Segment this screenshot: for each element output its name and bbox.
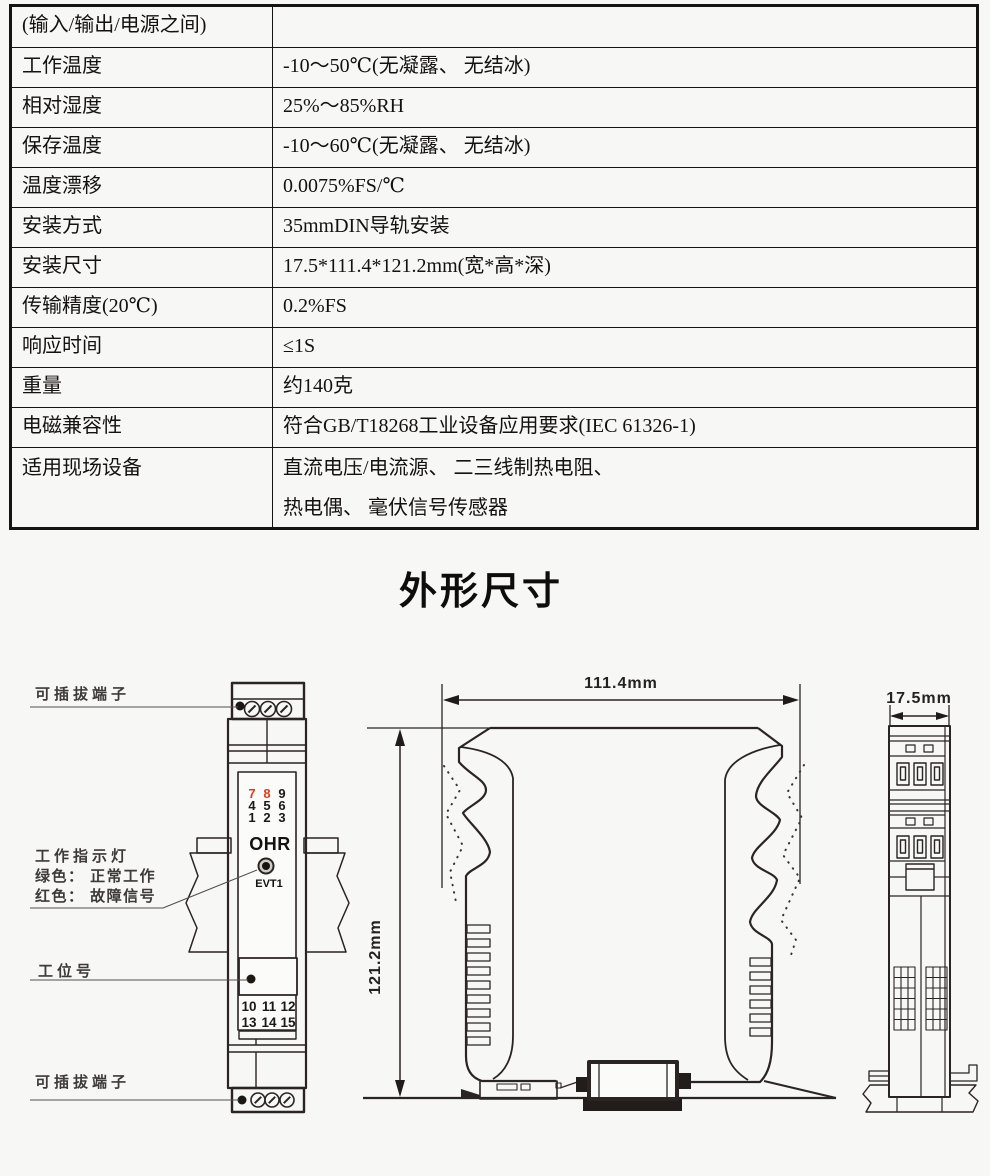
vent-slots-right — [750, 958, 771, 1036]
profile-left-edge — [459, 728, 556, 1081]
spec-label-cell: 相对湿度 — [12, 88, 273, 127]
front-view: 7 8 9 4 5 6 1 2 3 OHR EVT1 — [30, 683, 349, 1112]
vent-grid-left — [894, 967, 915, 1030]
bottom-terminal-block — [232, 1088, 304, 1112]
end-view: 17.5mm — [863, 690, 978, 1112]
spec-value-cell: 直流电压/电流源、 二三线制热电阻、 热电偶、 毫伏信号传感器 — [273, 448, 976, 527]
table-row: 重量 约140克 — [12, 367, 976, 407]
dim-height: 121.2mm — [367, 728, 490, 1097]
dimension-diagram: 7 8 9 4 5 6 1 2 3 OHR EVT1 — [0, 650, 990, 1176]
label-indicator-title: 工作指示灯 — [35, 847, 130, 865]
dim-depth-label: 17.5mm — [886, 690, 952, 707]
spec-label-cell: 工作温度 — [12, 48, 273, 87]
table-row: 传输精度(20℃) 0.2%FS — [12, 287, 976, 327]
flex-dotted-lines — [444, 765, 804, 958]
terminal-slots-upper — [897, 763, 943, 785]
spec-label-cell: 传输精度(20℃) — [12, 288, 273, 327]
spec-label-cell: 响应时间 — [12, 328, 273, 367]
brand-logo: OHR — [249, 834, 291, 854]
table-row: 安装尺寸 17.5*111.4*121.2mm(宽*高*深) — [12, 247, 976, 287]
front-module-body — [228, 719, 306, 1088]
arrowhead-right — [783, 695, 799, 705]
din-clip — [576, 1062, 691, 1111]
left-foot — [461, 1089, 480, 1099]
spec-label-cell: 电磁兼容性 — [12, 408, 273, 447]
terminal-slots-lower — [897, 836, 943, 858]
terminal-number: 2 — [263, 810, 270, 825]
spec-value-cell: -10～50℃(无凝露、 无结冰) — [273, 48, 976, 87]
top-terminal-block — [232, 683, 304, 719]
spec-label-cell: 安装尺寸 — [12, 248, 273, 287]
spec-value-cell: 符合GB/T18268工业设备应用要求(IEC 61326-1) — [273, 408, 976, 447]
leader-dot-tag — [247, 975, 256, 984]
led-label: EVT1 — [255, 878, 283, 890]
station-tag-window — [239, 958, 297, 995]
spec-label-cell: 保存温度 — [12, 128, 273, 167]
datasheet-page: (输入/输出/电源之间) 工作温度 -10～50℃(无凝露、 无结冰) 相对湿度… — [0, 0, 990, 1176]
table-row: 保存温度 -10～60℃(无凝露、 无结冰) — [12, 127, 976, 167]
spec-label-cell: 适用现场设备 — [12, 448, 273, 527]
arrowhead-up — [395, 729, 405, 746]
label-terminal-top: 可插拔端子 — [35, 685, 130, 703]
terminal-number: 1 — [248, 810, 255, 825]
dim-width: 111.4mm — [442, 675, 800, 888]
rail-slider — [461, 1078, 589, 1099]
spec-value-cell: 25%～85%RH — [273, 88, 976, 127]
label-terminal-bottom: 可插拔端子 — [35, 1073, 130, 1091]
spec-value-cell: 约140克 — [273, 368, 976, 407]
arrowhead-right — [936, 712, 949, 720]
dim-depth: 17.5mm — [886, 690, 952, 727]
spec-value-cell: 0.0075%FS/℃ — [273, 168, 976, 207]
spec-value-cell: -10～60℃(无凝露、 无结冰) — [273, 128, 976, 167]
spec-value-cell — [273, 7, 976, 47]
table-row: 电磁兼容性 符合GB/T18268工业设备应用要求(IEC 61326-1) — [12, 407, 976, 447]
latch-window — [906, 864, 934, 890]
table-row: 相对湿度 25%～85%RH — [12, 87, 976, 127]
terminal-number: 14 — [261, 1015, 277, 1030]
housing-profile — [363, 728, 836, 1098]
spec-value-cell: ≤1S — [273, 328, 976, 367]
leader-dot-top — [236, 702, 245, 711]
side-view: 111.4mm 121.2mm — [363, 675, 836, 1111]
arrowhead-left — [443, 695, 459, 705]
table-row: (输入/输出/电源之间) — [12, 7, 976, 47]
spec-value-cell: 0.2%FS — [273, 288, 976, 327]
dim-height-label: 121.2mm — [367, 919, 384, 995]
vent-grid-right — [926, 967, 947, 1030]
terminal-screws-top — [245, 702, 292, 717]
end-module-body — [889, 726, 950, 1097]
table-row: 工作温度 -10～50℃(无凝露、 无结冰) — [12, 47, 976, 87]
terminal-number: 10 — [241, 999, 256, 1014]
profile-left-wall — [461, 747, 513, 1079]
terminal-number: 11 — [262, 999, 277, 1014]
table-row: 安装方式 35mmDIN导轨安装 — [12, 207, 976, 247]
spec-value-line1: 直流电压/电流源、 二三线制热电阻、 — [283, 448, 976, 488]
label-station-tag: 工位号 — [38, 962, 95, 980]
spec-label-cell: 重量 — [12, 368, 273, 407]
terminal-screws-bottom — [251, 1093, 294, 1107]
spec-label-cell: (输入/输出/电源之间) — [12, 7, 273, 47]
spec-label-cell: 安装方式 — [12, 208, 273, 247]
terminal-numbers-bottom: 10 11 12 13 14 15 — [241, 999, 296, 1030]
profile-right-edge — [680, 728, 782, 1082]
table-row: 适用现场设备 直流电压/电流源、 二三线制热电阻、 热电偶、 毫伏信号传感器 — [12, 447, 976, 527]
arrowhead-down — [395, 1080, 405, 1097]
terminal-number: 3 — [278, 810, 285, 825]
spec-label-cell: 温度漂移 — [12, 168, 273, 207]
ramp-line — [764, 1081, 836, 1098]
callout-labels: 可插拔端子 工作指示灯 绿色： 正常工作 红色： 故障信号 工位号 可插拔端子 — [35, 685, 156, 1091]
dim-width-label: 111.4mm — [584, 675, 658, 692]
terminal-number: 15 — [280, 1015, 296, 1030]
vent-slots-left — [467, 925, 490, 1045]
spec-value-cell: 35mmDIN导轨安装 — [273, 208, 976, 247]
arrowhead-left — [890, 712, 903, 720]
spec-table: (输入/输出/电源之间) 工作温度 -10～50℃(无凝露、 无结冰) 相对湿度… — [9, 4, 979, 530]
label-indicator-red: 红色： 故障信号 — [35, 887, 156, 905]
spec-value-cell: 17.5*111.4*121.2mm(宽*高*深) — [273, 248, 976, 287]
terminal-number: 13 — [241, 1015, 257, 1030]
spec-value-line2: 热电偶、 毫伏信号传感器 — [283, 488, 976, 527]
label-indicator-green: 绿色： 正常工作 — [35, 867, 156, 885]
status-led — [259, 859, 274, 874]
section-title: 外形尺寸 — [0, 560, 962, 615]
terminal-number: 12 — [280, 999, 295, 1014]
table-row: 温度漂移 0.0075%FS/℃ — [12, 167, 976, 207]
terminal-numbers-top: 7 8 9 4 5 6 1 2 3 — [248, 786, 285, 825]
table-row: 响应时间 ≤1S — [12, 327, 976, 367]
